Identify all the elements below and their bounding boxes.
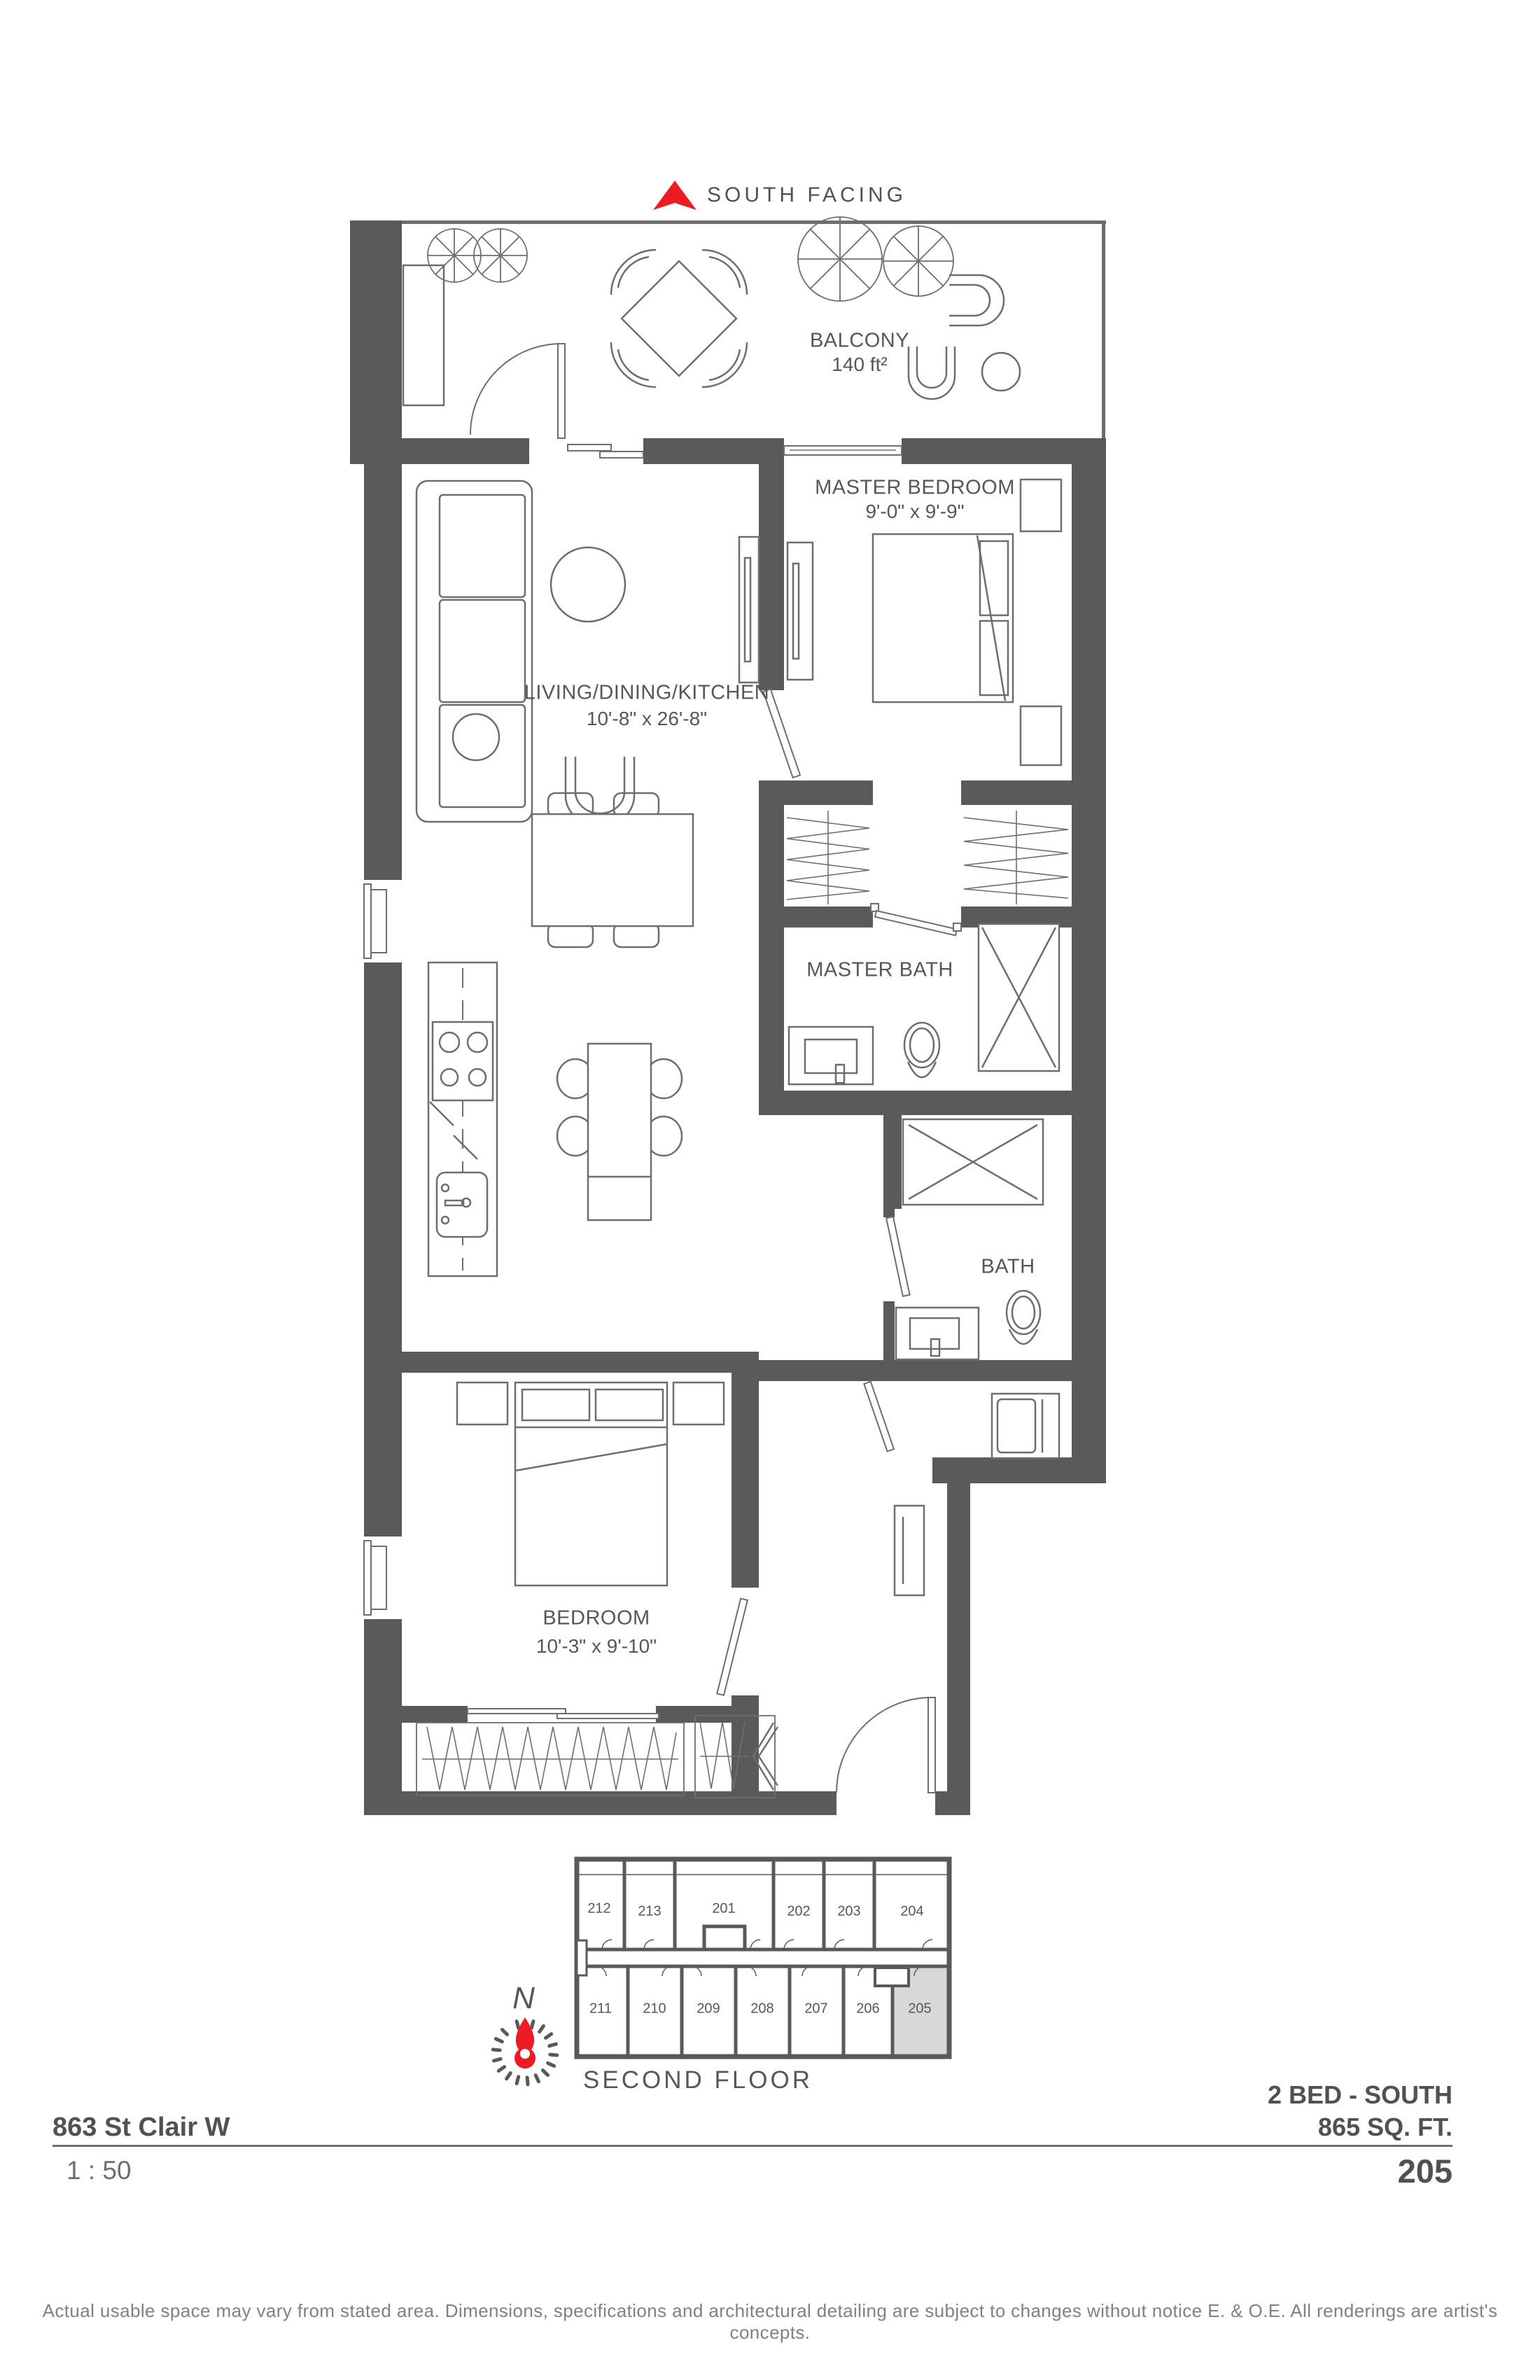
bath-label: BATH <box>981 1256 1035 1279</box>
keyplan-drawing <box>574 1856 952 2066</box>
unit-area: 865 SQ. FT. <box>1318 2113 1452 2142</box>
drawing-scale: 1 : 50 <box>66 2156 132 2185</box>
master-bath-label: MASTER BATH <box>806 959 953 982</box>
keyplan-unit-209: 209 <box>696 2001 720 2017</box>
keyplan-unit-213: 213 <box>638 1904 661 1920</box>
bedroom-label: BEDROOM <box>542 1607 650 1630</box>
living-dining-kitchen-label: LIVING/DINING/KITCHEN <box>524 682 770 705</box>
south-facing-label: SOUTH FACING <box>707 183 906 207</box>
floor-label: SECOND FLOOR <box>583 2066 813 2094</box>
master-bedroom-label: MASTER BEDROOM <box>815 477 1015 500</box>
floorplan-page: SOUTH FACING <box>0 0 1540 2380</box>
unit-number: 205 <box>1398 2152 1452 2190</box>
keyplan-unit-206: 206 <box>856 2001 879 2017</box>
compass-icon <box>486 1996 563 2108</box>
south-facing-arrow-icon <box>653 181 696 210</box>
keyplan-unit-202: 202 <box>787 1904 810 1920</box>
titleblock-rule <box>52 2145 1452 2147</box>
disclaimer: Actual usable space may vary from stated… <box>0 2300 1540 2344</box>
keyplan-unit-204: 204 <box>900 1904 923 1920</box>
keyplan-unit-210: 210 <box>643 2001 666 2017</box>
keyplan-unit-203: 203 <box>837 1904 860 1920</box>
bedroom-dims: 10'-3" x 9'-10" <box>536 1635 657 1658</box>
doors <box>470 344 961 1793</box>
keyplan-unit-211: 211 <box>589 2001 612 2017</box>
keyplan-unit-205: 205 <box>908 2001 931 2017</box>
master-bedroom-dims: 9'-0" x 9'-9" <box>865 500 964 523</box>
address: 863 St Clair W <box>52 2113 230 2143</box>
keyplan-unit-207: 207 <box>804 2001 827 2017</box>
keyplan-unit-212: 212 <box>587 1901 610 1917</box>
balcony-area: 140 ft² <box>832 353 887 376</box>
keyplan-unit-201: 201 <box>712 1901 735 1917</box>
balcony-label: BALCONY <box>810 330 909 353</box>
living-dining-kitchen-dims: 10'-8" x 26'-8" <box>587 708 707 730</box>
keyplan-unit-208: 208 <box>750 2001 773 2017</box>
unit-floorplan-drawing <box>350 220 1106 1816</box>
unit-type: 2 BED - SOUTH <box>1268 2080 1452 2110</box>
